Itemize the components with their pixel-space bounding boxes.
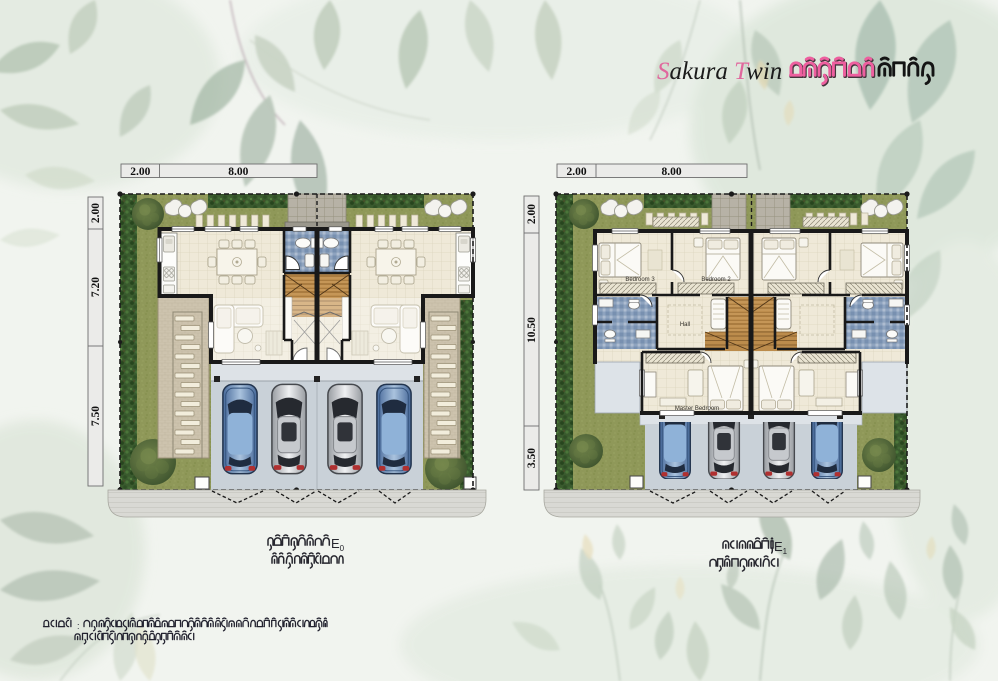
svg-text:7.20: 7.20: [90, 277, 102, 297]
svg-text:2.00: 2.00: [130, 166, 150, 178]
svg-text:2.00: 2.00: [90, 203, 102, 223]
svg-text:2.00: 2.00: [526, 204, 538, 224]
svg-text:Bedroom 2: Bedroom 2: [701, 277, 731, 283]
svg-text:Sakura Twin: Sakura Twin: [657, 58, 782, 85]
svg-text:Bedroom 3: Bedroom 3: [625, 277, 655, 283]
svg-text:7.50: 7.50: [90, 406, 102, 426]
svg-text:8.00: 8.00: [661, 166, 681, 178]
svg-text:Master Bedroom: Master Bedroom: [675, 406, 719, 412]
svg-text:10.50: 10.50: [526, 317, 538, 343]
svg-text:Hall: Hall: [680, 322, 690, 328]
svg-text:8.00: 8.00: [228, 166, 248, 178]
svg-text:3.50: 3.50: [526, 448, 538, 468]
svg-text:2.00: 2.00: [566, 166, 586, 178]
svg-text::: :: [77, 621, 80, 631]
